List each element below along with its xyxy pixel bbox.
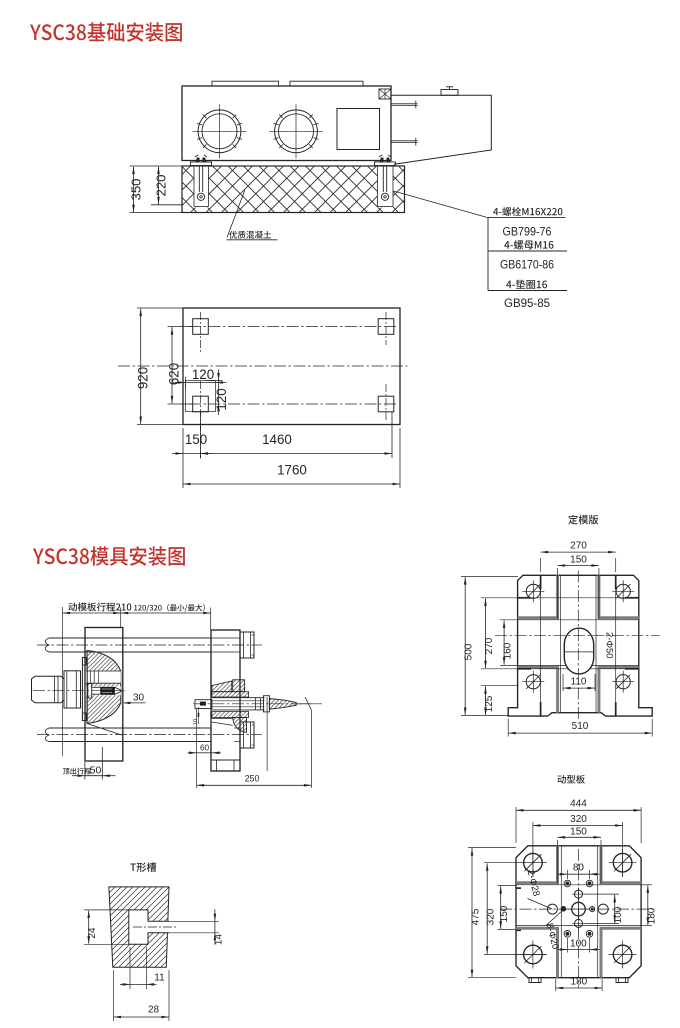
svg-text:110: 110: [571, 677, 587, 688]
svg-text:510: 510: [572, 721, 589, 732]
svg-text:320: 320: [486, 908, 497, 925]
svg-text:50: 50: [90, 765, 102, 777]
svg-text:150: 150: [499, 905, 510, 922]
svg-text:320: 320: [570, 814, 587, 825]
svg-text:24: 24: [87, 927, 98, 939]
svg-text:30: 30: [133, 693, 145, 704]
svg-text:10: 10: [193, 719, 199, 725]
svg-text:100: 100: [570, 939, 587, 950]
svg-text:GB6170-86: GB6170-86: [500, 258, 554, 272]
svg-text:180: 180: [646, 907, 657, 924]
svg-text:270: 270: [570, 541, 587, 552]
svg-text:14: 14: [214, 934, 225, 946]
svg-text:120: 120: [192, 367, 214, 382]
svg-text:120: 120: [214, 388, 229, 410]
svg-text:100: 100: [613, 906, 624, 923]
svg-text:GB95-85: GB95-85: [504, 296, 550, 310]
svg-text:150: 150: [185, 432, 207, 447]
svg-text:2-Φ50: 2-Φ50: [604, 632, 615, 659]
svg-text:GB799-76: GB799-76: [503, 225, 552, 239]
svg-text:60: 60: [200, 744, 210, 753]
svg-text:270: 270: [484, 637, 495, 654]
svg-text:1460: 1460: [262, 432, 292, 447]
svg-text:125: 125: [484, 695, 495, 712]
svg-text:180: 180: [571, 977, 588, 988]
svg-text:444: 444: [570, 799, 587, 810]
svg-text:160: 160: [503, 642, 514, 659]
svg-text:475: 475: [470, 908, 481, 925]
svg-text:500: 500: [464, 643, 475, 660]
svg-text:150: 150: [570, 555, 587, 566]
svg-text:11: 11: [154, 973, 165, 984]
svg-text:150: 150: [570, 826, 587, 837]
svg-text:350: 350: [129, 178, 144, 200]
svg-text:250: 250: [245, 774, 260, 784]
svg-text:28: 28: [148, 1005, 160, 1016]
svg-text:920: 920: [136, 367, 151, 389]
svg-text:80: 80: [573, 863, 585, 874]
svg-text:220: 220: [154, 174, 169, 196]
svg-text:1760: 1760: [277, 463, 307, 478]
